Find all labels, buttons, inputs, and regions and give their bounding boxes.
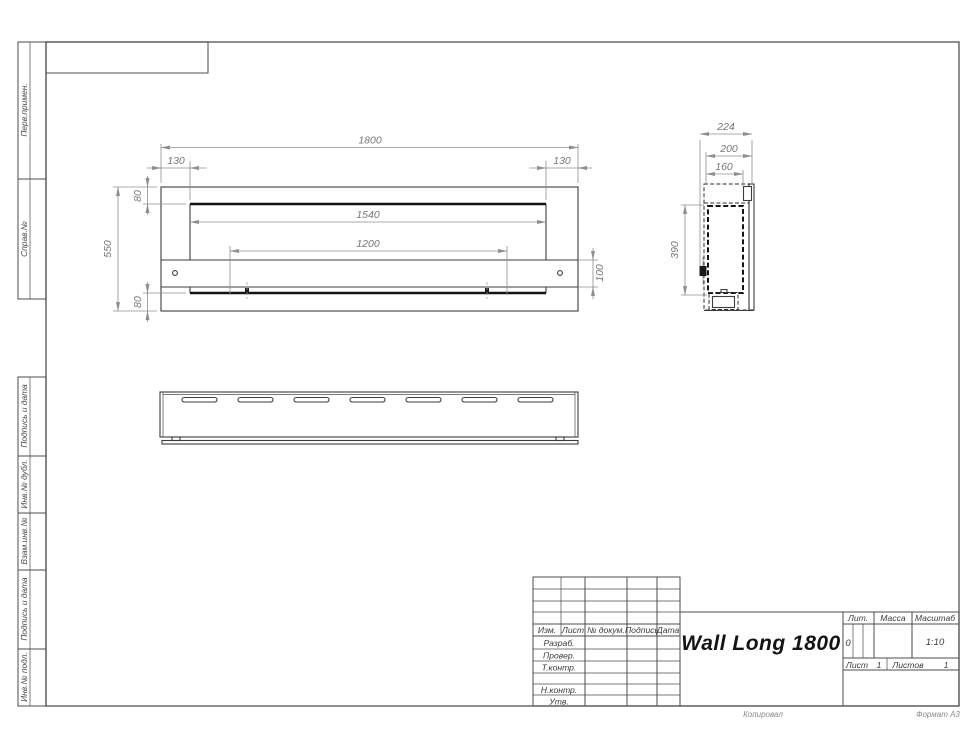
drawing-title: Wall Long 1800: [681, 632, 841, 655]
sheets-value: 1: [944, 660, 949, 670]
lit-label: Лит.: [847, 613, 868, 623]
dim-depth-overall-label: 224: [716, 121, 735, 133]
margin-label-perv-primen: Перв.примен.: [19, 83, 29, 136]
bottom-view: [160, 392, 578, 444]
bottom-box: [713, 297, 735, 308]
col-sign-label: Подпись: [625, 625, 660, 635]
dim-depth-body-label: 200: [719, 143, 738, 155]
dim-bracket-drop-label: 390: [669, 241, 681, 259]
margin-label-vzam-inv: Взам.инв.№: [19, 517, 29, 564]
row-prover-label: Провер.: [543, 651, 575, 661]
mount-clip: [700, 266, 707, 276]
margin-label-inv-podl: Инв.№ подл.: [19, 652, 29, 702]
mass-label: Масса: [880, 613, 906, 623]
sheets-label: Листов: [891, 660, 924, 670]
drawing-sheet: Перв.примен. Справ.№ Подпись и дата Инв.…: [0, 0, 970, 749]
side-view-dimensions: 224 200 160 390: [669, 121, 752, 295]
dim-overall-height-label: 550: [102, 240, 114, 258]
sheet-value: 1: [877, 660, 882, 670]
wall-plate: [749, 184, 754, 310]
row-utv-label: Утв.: [548, 697, 569, 707]
bottom-strip: [162, 441, 578, 445]
row-nkontr-label: Н.контр.: [541, 685, 577, 695]
dim-flange-bottom-label: 80: [132, 296, 144, 308]
sheet-label: Лист: [845, 660, 868, 670]
top-left-designation-box: [46, 42, 208, 73]
side-opening-hidden: [708, 206, 743, 293]
dim-offset-left-label: 130: [167, 155, 185, 167]
footer-notes: Копировал Формат А3: [743, 710, 960, 719]
lit-value: 0: [845, 638, 851, 649]
bottom-box-tab: [721, 290, 727, 293]
margin-label-inv-dubl: Инв.№ дубл.: [19, 459, 29, 508]
row-razrab-label: Разраб.: [543, 638, 574, 648]
scale-label: Масштаб: [915, 613, 956, 623]
dim-offset-right-label: 130: [553, 155, 571, 167]
mount-hole-right: [558, 271, 563, 276]
top-bracket: [744, 187, 752, 201]
col-list-label: Лист: [561, 625, 584, 635]
title-block: Изм. Лист № докум. Подпись Дата Разраб. …: [533, 577, 959, 707]
mount-hole-left: [173, 271, 178, 276]
drawing-frame-border: [46, 42, 959, 706]
dim-flange-top-label: 80: [132, 190, 144, 202]
col-izm-label: Изм.: [538, 625, 556, 635]
dim-depth-inner-label: 160: [715, 161, 733, 173]
col-doc-label: № докум.: [587, 625, 625, 635]
col-date-label: Дата: [656, 625, 680, 635]
mount-band: [162, 260, 577, 287]
format-note: Формат А3: [916, 710, 960, 719]
row-tkontr-label: Т.контр.: [542, 663, 577, 673]
dim-opening-width-label: 1540: [356, 209, 380, 221]
left-margin-column: Перв.примен. Справ.№ Подпись и дата Инв.…: [18, 42, 46, 706]
dim-mount-span-label: 1200: [356, 238, 380, 250]
margin-label-podpis-data-2: Подпись и дата: [19, 577, 29, 641]
sheet-frame: [46, 42, 959, 706]
dim-overall-width-label: 1800: [358, 135, 382, 147]
dim-bracket-height-label: 100: [594, 264, 606, 282]
scale-value: 1:10: [926, 637, 945, 648]
margin-label-podpis-data-1: Подпись и дата: [19, 384, 29, 448]
margin-label-sprav-no: Справ.№: [19, 221, 29, 257]
side-view: [700, 184, 755, 311]
copied-note: Копировал: [743, 710, 783, 719]
vent-slots: [182, 398, 553, 403]
gost-drawing: Перв.примен. Справ.№ Подпись и дата Инв.…: [0, 0, 970, 749]
